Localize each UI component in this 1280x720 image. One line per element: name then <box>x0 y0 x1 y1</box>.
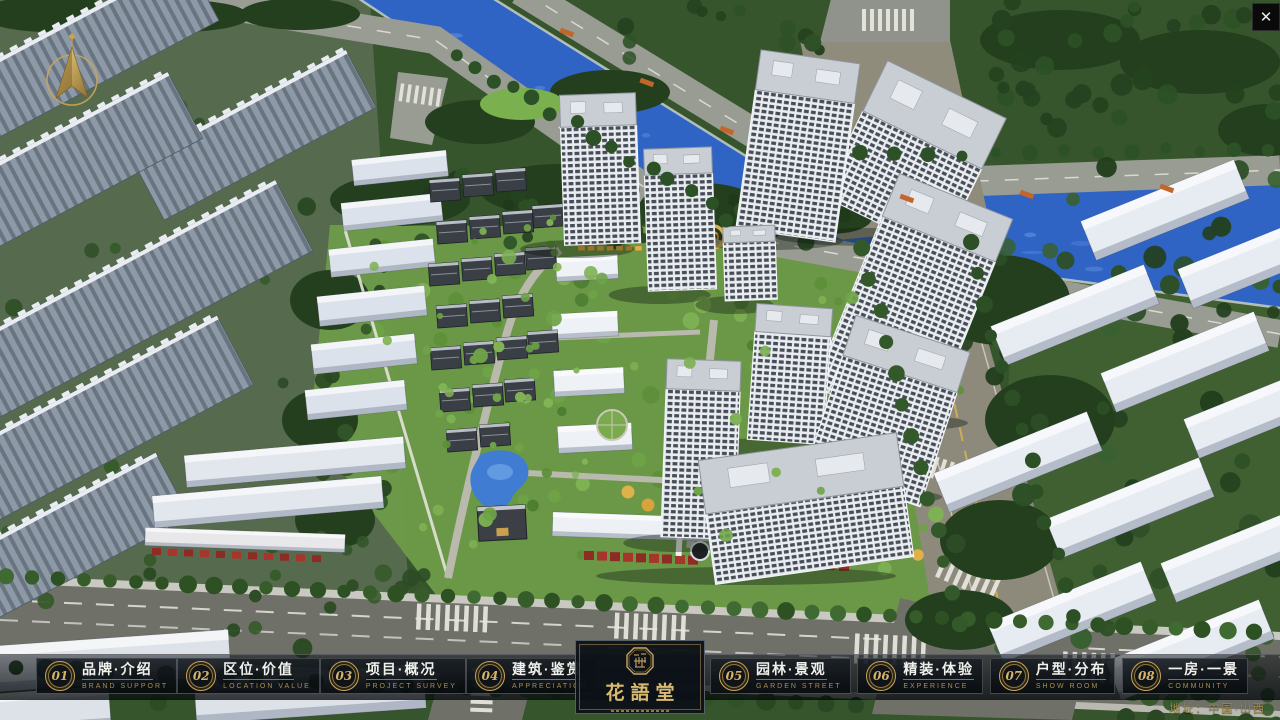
nav-group-right: 05 园林·景观GARDEN STREET 06 精装·体验EXPERIENCE… <box>710 658 1248 696</box>
nav-label-zh: 一房·一景 <box>1168 662 1239 680</box>
close-button[interactable]: ✕ <box>1252 3 1280 31</box>
compass-north-icon <box>40 32 104 112</box>
nav-item-project[interactable]: 03 项目·概况PROJECT SURVEY <box>320 658 466 694</box>
nav-item-location[interactable]: 02 区位·价值LOCATION VALUE <box>177 658 320 694</box>
project-address: 地址：中国·山西 <box>1169 700 1266 716</box>
nav-number-badge: 02 <box>186 661 216 691</box>
nav-number-badge: 08 <box>1131 661 1161 691</box>
nav-item-views[interactable]: 08 一房·一景COMMUNITY <box>1122 658 1248 694</box>
nav-label-zh: 品牌·介绍 <box>82 662 153 680</box>
nav-number-badge: 07 <box>999 661 1029 691</box>
nav-label-zh: 户型·分布 <box>1036 662 1107 680</box>
nav-number-badge: 06 <box>866 661 896 691</box>
nav-item-interior[interactable]: 06 精装·体验EXPERIENCE <box>857 658 983 694</box>
nav-label-zh: 项目·概况 <box>366 662 437 680</box>
nav-label-en: LOCATION VALUE <box>223 683 311 690</box>
masterplan-3d-view[interactable] <box>0 0 1280 720</box>
nav-number-badge: 04 <box>475 661 505 691</box>
nav-label-zh: 区位·价值 <box>223 662 294 680</box>
nav-label-zh: 精装·体验 <box>903 662 974 680</box>
close-icon: ✕ <box>1260 10 1273 25</box>
nav-label-en: GARDEN STREET <box>756 683 842 690</box>
nav-number-badge: 05 <box>719 661 749 691</box>
nav-group-left: 01 品牌·介绍BRAND SUPPORT 02 区位·价值LOCATION V… <box>36 658 574 696</box>
logo-subtext-line <box>611 710 669 712</box>
nav-label-en: BRAND SUPPORT <box>82 683 168 690</box>
logo-seal-icon <box>625 646 655 676</box>
nav-item-brand[interactable]: 01 品牌·介绍BRAND SUPPORT <box>36 658 177 694</box>
nav-number-badge: 01 <box>45 661 75 691</box>
nav-label-en: SHOW ROOM <box>1036 683 1100 690</box>
nav-label-zh: 建筑·鉴赏 <box>512 662 583 680</box>
logo-title: 花語堂 <box>599 678 680 705</box>
nav-label-en: PROJECT SURVEY <box>366 683 457 690</box>
nav-item-floorplan[interactable]: 07 户型·分布SHOW ROOM <box>990 658 1116 694</box>
nav-label-zh: 园林·景观 <box>756 662 827 680</box>
project-logo[interactable]: 花語堂 <box>575 640 705 714</box>
sales-presentation-window: ✕ 01 品牌·介绍BRAND SUPPORT 02 区位·价值LOCATION… <box>0 0 1280 720</box>
nav-item-garden[interactable]: 05 园林·景观GARDEN STREET <box>710 658 851 694</box>
nav-number-badge: 03 <box>329 661 359 691</box>
nav-label-en: COMMUNITY <box>1168 683 1229 690</box>
nav-label-en: EXPERIENCE <box>903 683 968 690</box>
